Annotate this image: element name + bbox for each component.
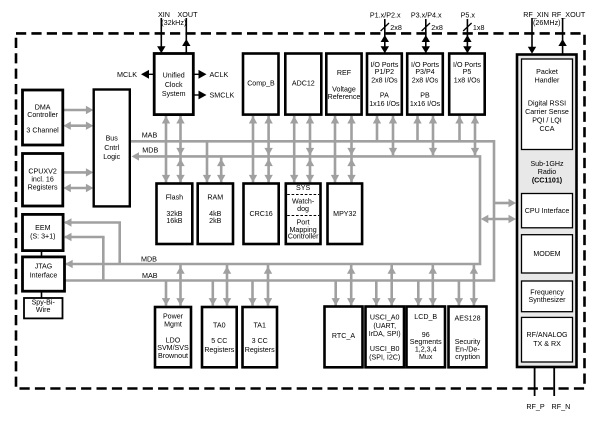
svg-text:MPY32: MPY32 (333, 210, 356, 218)
svg-text:Registers: Registers (204, 346, 234, 354)
svg-text:(32kHz): (32kHz) (161, 18, 186, 27)
svg-text:TA0: TA0 (213, 321, 226, 329)
svg-text:Cntrl: Cntrl (104, 144, 119, 152)
svg-text:CRC16: CRC16 (249, 210, 272, 218)
svg-text:Mgmt: Mgmt (164, 321, 182, 329)
svg-text:Interface: Interface (30, 271, 58, 279)
svg-text:Controller: Controller (27, 111, 58, 119)
svg-text:Radio: Radio (538, 168, 557, 176)
svg-text:Handler: Handler (535, 76, 560, 84)
svg-text:2kB: 2kB (209, 217, 221, 225)
svg-text:RF_P: RF_P (526, 402, 545, 411)
svg-text:USCI_B0: USCI_B0 (370, 345, 400, 353)
svg-text:ADC12: ADC12 (292, 80, 315, 88)
svg-text:IrDA, SPI): IrDA, SPI) (369, 330, 401, 338)
svg-text:cryption: cryption (455, 353, 480, 361)
svg-text:1x8: 1x8 (473, 23, 485, 32)
svg-text:Packet: Packet (536, 68, 558, 76)
svg-text:P1.x/P2.x: P1.x/P2.x (370, 11, 401, 20)
svg-text:3 CC: 3 CC (252, 337, 268, 345)
svg-text:SMCLK: SMCLK (210, 91, 235, 100)
svg-text:(SPI, I2C): (SPI, I2C) (369, 353, 400, 361)
svg-text:P3.x/P4.x: P3.x/P4.x (411, 11, 442, 20)
svg-text:Power: Power (163, 313, 184, 321)
svg-text:5 CC: 5 CC (211, 337, 227, 345)
svg-text:1x8 I/Os: 1x8 I/Os (454, 76, 481, 84)
svg-text:Logic: Logic (103, 153, 120, 161)
svg-text:MAB: MAB (142, 131, 158, 140)
svg-text:PQI / LQI: PQI / LQI (532, 117, 562, 125)
svg-text:CPU Interface: CPU Interface (525, 207, 570, 215)
svg-text:Sub-1GHz: Sub-1GHz (530, 160, 564, 168)
svg-text:MDB: MDB (142, 146, 158, 155)
svg-text:TX & RX: TX & RX (533, 340, 561, 348)
svg-text:Carrier Sense: Carrier Sense (525, 108, 569, 116)
svg-text:Controller: Controller (288, 233, 319, 241)
svg-text:CPUXV2: CPUXV2 (28, 168, 56, 176)
svg-text:Comp_B: Comp_B (247, 80, 275, 88)
svg-text:RTC_A: RTC_A (332, 332, 355, 340)
svg-text:3 Channel: 3 Channel (26, 126, 59, 134)
svg-text:SYS: SYS (296, 184, 310, 192)
svg-text:Reference: Reference (328, 93, 361, 101)
svg-text:MDB: MDB (141, 255, 157, 264)
svg-text:2x8 I/Os: 2x8 I/Os (412, 76, 439, 84)
svg-text:LCD_B: LCD_B (414, 313, 437, 321)
svg-text:P5.x: P5.x (461, 11, 476, 20)
svg-text:ACLK: ACLK (210, 70, 229, 79)
svg-text:RF/ANALOG: RF/ANALOG (527, 331, 568, 339)
svg-text:P5: P5 (463, 68, 472, 76)
svg-text:Registers: Registers (28, 184, 58, 192)
svg-text:EEM: EEM (35, 224, 50, 232)
svg-text:USCI_A0: USCI_A0 (370, 313, 400, 321)
svg-text:TA1: TA1 (253, 321, 266, 329)
svg-text:RAM: RAM (207, 194, 223, 202)
svg-text:Wire: Wire (36, 306, 51, 314)
svg-text:Flash: Flash (166, 194, 183, 202)
svg-text:(26MHz): (26MHz) (533, 18, 561, 27)
svg-text:CCA: CCA (540, 125, 555, 133)
svg-text:Digital RSSI: Digital RSSI (528, 100, 566, 108)
svg-text:MODEM: MODEM (533, 250, 560, 258)
svg-text:2x8 I/Os: 2x8 I/Os (371, 76, 398, 84)
svg-text:Mux: Mux (419, 353, 433, 361)
svg-text:P3/P4: P3/P4 (415, 68, 434, 76)
svg-text:P1/P2: P1/P2 (375, 68, 394, 76)
svg-text:System: System (162, 90, 186, 98)
svg-text:RF_N: RF_N (552, 402, 571, 411)
svg-text:Synthesizer: Synthesizer (528, 296, 566, 304)
svg-text:1x16 I/Os: 1x16 I/Os (410, 100, 441, 108)
svg-text:Brownout: Brownout (158, 352, 188, 360)
svg-text:dog: dog (297, 205, 309, 213)
svg-text:Unified: Unified (163, 72, 185, 80)
svg-text:16kB: 16kB (166, 217, 182, 225)
svg-text:PA: PA (380, 92, 389, 100)
svg-text:(UART,: (UART, (373, 322, 396, 330)
svg-text:1x16 I/Os: 1x16 I/Os (369, 100, 400, 108)
svg-text:2x8: 2x8 (431, 23, 443, 32)
svg-text:Registers: Registers (245, 346, 275, 354)
svg-text:REF: REF (337, 69, 352, 77)
svg-text:SVM/SVS: SVM/SVS (157, 344, 189, 352)
svg-text:AES128: AES128 (454, 314, 480, 322)
svg-text:2x8: 2x8 (390, 23, 402, 32)
svg-text:JTAG: JTAG (35, 263, 53, 271)
svg-text:MAB: MAB (142, 271, 158, 280)
svg-text:Clock: Clock (165, 81, 183, 89)
svg-text:(CC1101): (CC1101) (532, 176, 563, 184)
svg-text:MCLK: MCLK (117, 70, 137, 79)
svg-text:Bus: Bus (106, 134, 119, 142)
svg-text:incl. 16: incl. 16 (31, 176, 54, 184)
svg-text:(S: 3+1): (S: 3+1) (30, 232, 55, 240)
svg-text:PB: PB (420, 92, 430, 100)
